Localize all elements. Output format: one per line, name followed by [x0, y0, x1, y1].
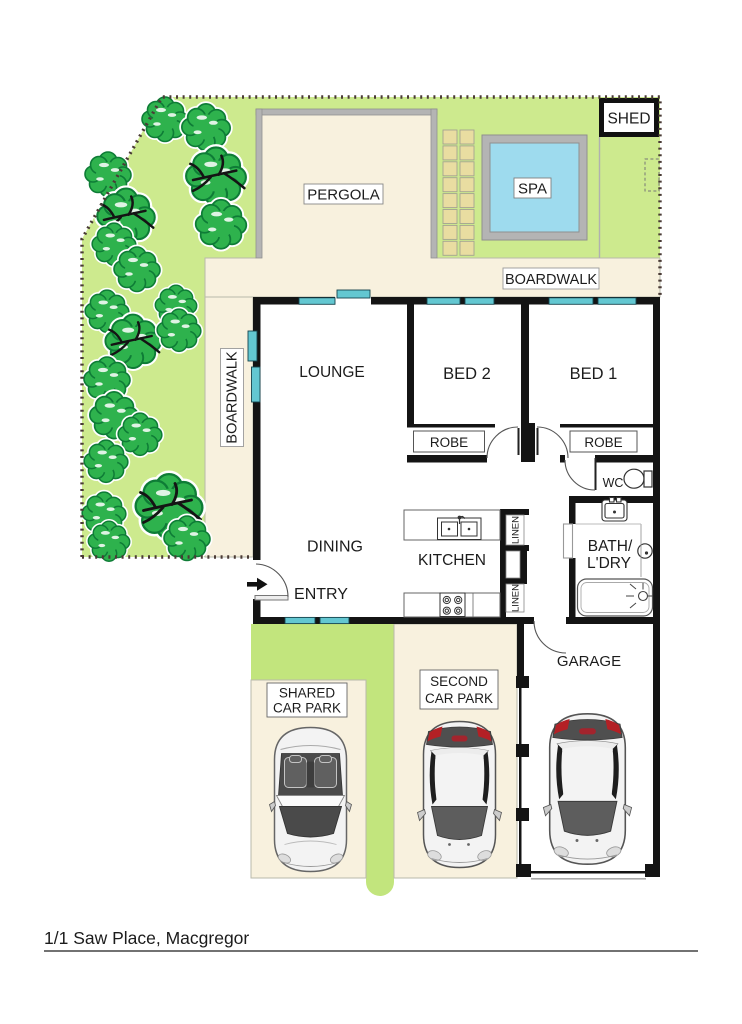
svg-text:LOUNGE: LOUNGE: [299, 364, 364, 381]
svg-text:SPA: SPA: [518, 181, 547, 198]
svg-text:WC: WC: [603, 476, 624, 490]
svg-text:SHED: SHED: [607, 111, 650, 128]
svg-text:BATH/: BATH/: [588, 538, 633, 555]
svg-text:LINEN: LINEN: [511, 516, 522, 544]
svg-text:PERGOLA: PERGOLA: [307, 187, 380, 204]
svg-text:SECOND: SECOND: [430, 674, 488, 689]
svg-text:GARAGE: GARAGE: [557, 653, 621, 670]
svg-text:BED 1: BED 1: [570, 365, 618, 383]
svg-text:LINEN: LINEN: [511, 584, 522, 612]
svg-text:BOARDWALK: BOARDWALK: [505, 272, 597, 288]
svg-text:SHARED: SHARED: [279, 686, 336, 701]
svg-text:ENTRY: ENTRY: [294, 586, 348, 603]
svg-text:KITCHEN: KITCHEN: [418, 552, 486, 569]
svg-text:BOARDWALK: BOARDWALK: [225, 351, 241, 443]
svg-text:CAR PARK: CAR PARK: [425, 691, 493, 706]
svg-text:DINING: DINING: [307, 539, 363, 556]
svg-text:BED 2: BED 2: [443, 365, 491, 383]
svg-text:ROBE: ROBE: [584, 435, 622, 450]
svg-text:L'DRY: L'DRY: [587, 555, 631, 572]
svg-text:CAR PARK: CAR PARK: [273, 701, 341, 716]
svg-text:1/1 Saw Place, Macgregor: 1/1 Saw Place, Macgregor: [44, 928, 249, 948]
svg-text:ROBE: ROBE: [430, 435, 468, 450]
